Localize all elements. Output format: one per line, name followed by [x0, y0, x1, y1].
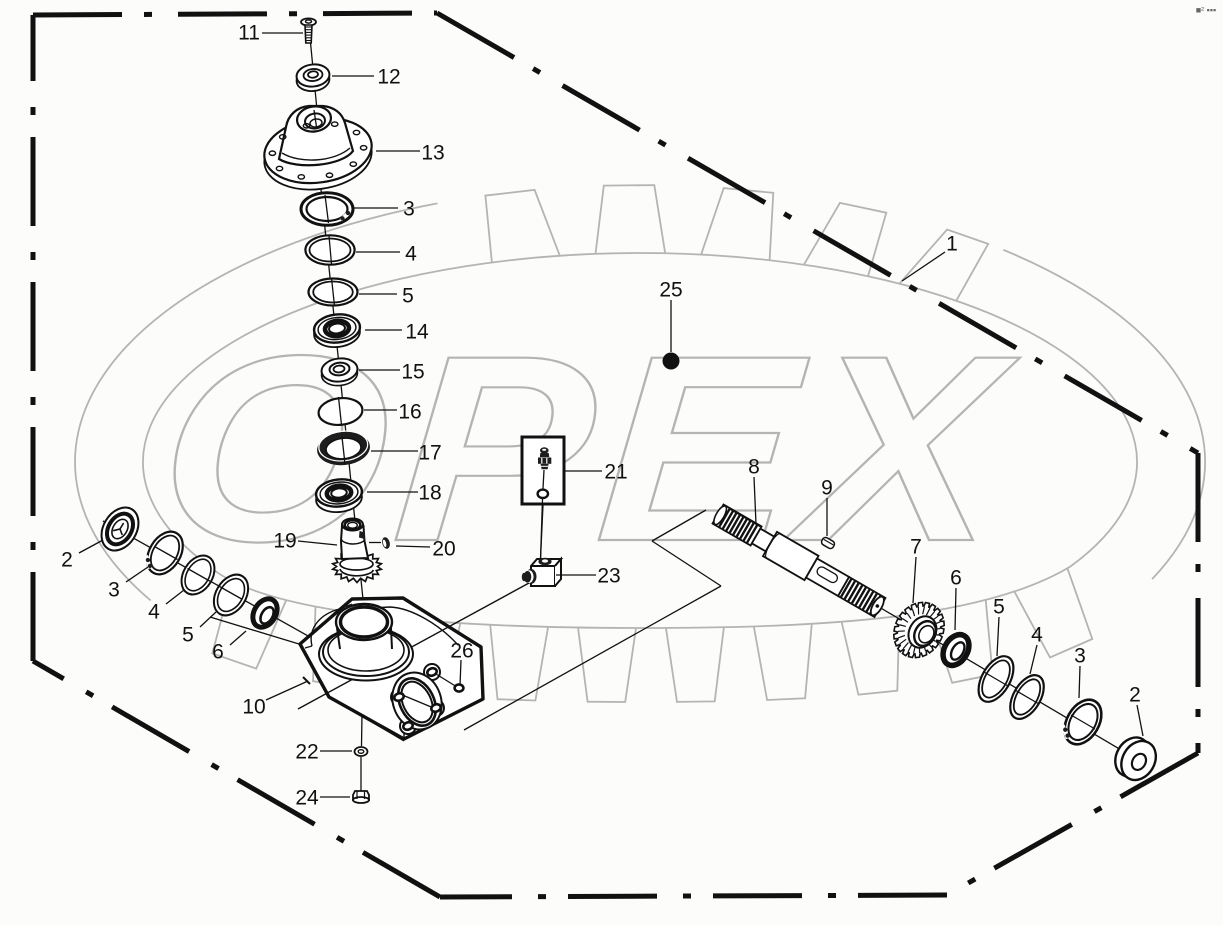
svg-text:23: 23 [597, 565, 620, 588]
svg-text:3: 3 [108, 579, 120, 602]
svg-text:18: 18 [418, 482, 441, 505]
svg-text:6: 6 [950, 567, 962, 590]
svg-text:19: 19 [273, 530, 296, 553]
svg-text:10: 10 [242, 696, 265, 719]
svg-text:12: 12 [377, 66, 400, 89]
svg-text:■² ▪▪▪: ■² ▪▪▪ [1196, 5, 1217, 15]
svg-text:4: 4 [148, 601, 160, 624]
svg-text:25: 25 [659, 279, 682, 302]
svg-text:11: 11 [238, 22, 260, 45]
svg-text:2: 2 [61, 549, 73, 572]
svg-text:7: 7 [910, 536, 922, 559]
svg-text:9: 9 [821, 477, 833, 500]
svg-text:21: 21 [604, 461, 627, 484]
svg-text:3: 3 [1074, 645, 1086, 668]
svg-text:20: 20 [432, 538, 455, 561]
svg-text:17: 17 [418, 442, 441, 465]
svg-text:2: 2 [1129, 684, 1141, 707]
svg-text:5: 5 [182, 624, 194, 647]
svg-text:1: 1 [946, 233, 958, 256]
svg-text:3: 3 [403, 198, 415, 221]
svg-text:22: 22 [295, 741, 318, 764]
svg-text:5: 5 [402, 285, 414, 308]
svg-text:4: 4 [1031, 624, 1043, 647]
svg-text:15: 15 [401, 361, 424, 384]
svg-text:14: 14 [405, 321, 429, 344]
svg-text:24: 24 [295, 787, 319, 810]
svg-text:6: 6 [212, 641, 224, 664]
svg-text:16: 16 [398, 401, 421, 424]
svg-text:8: 8 [748, 456, 760, 479]
svg-text:26: 26 [450, 640, 473, 663]
svg-text:13: 13 [421, 142, 444, 165]
svg-text:5: 5 [993, 596, 1005, 619]
svg-text:4: 4 [405, 243, 417, 266]
